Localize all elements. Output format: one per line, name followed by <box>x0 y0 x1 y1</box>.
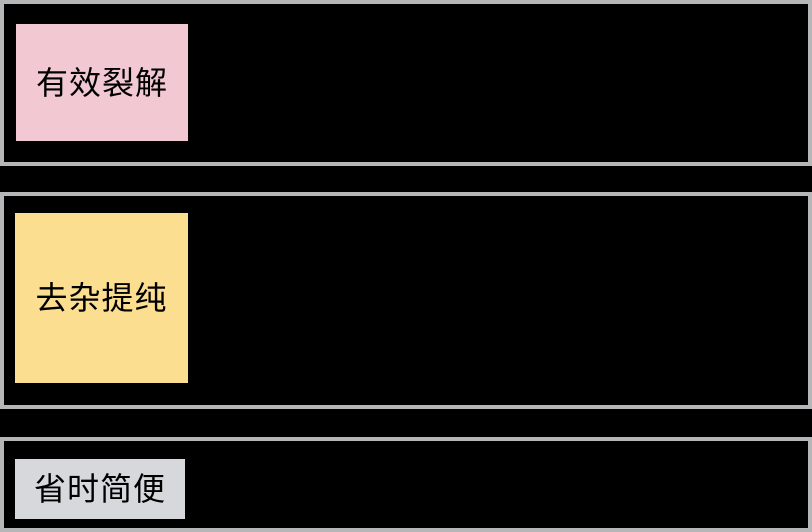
panel-convenience: 省时简便 <box>0 437 812 532</box>
label-box-purification: 去杂提纯 <box>15 213 188 383</box>
label-text-lysis: 有效裂解 <box>36 67 168 99</box>
label-text-purification: 去杂提纯 <box>35 282 167 314</box>
slide-canvas: 有效裂解 去杂提纯 省时简便 <box>0 0 812 532</box>
label-box-convenience: 省时简便 <box>15 459 185 519</box>
label-text-convenience: 省时简便 <box>34 473 166 505</box>
label-box-lysis: 有效裂解 <box>16 24 188 141</box>
panel-lysis: 有效裂解 <box>0 0 812 166</box>
panel-purification: 去杂提纯 <box>0 192 812 409</box>
